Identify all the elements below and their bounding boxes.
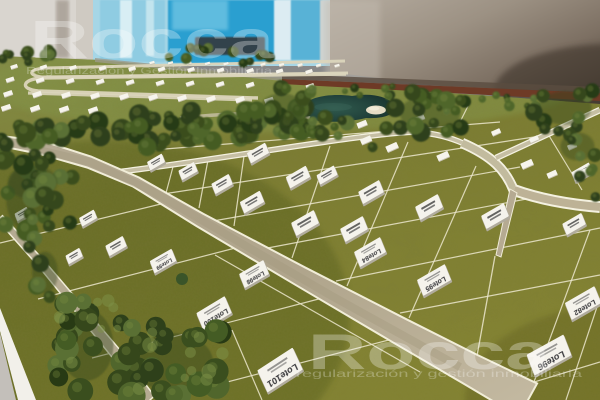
svg-text:Regularización y Gestión Inmob: Regularización y Gestión Inmobiliaria xyxy=(26,65,272,77)
svg-text:Rocca: Rocca xyxy=(30,10,275,70)
svg-text:regularización y gestión inmob: regularización y gestión inmobiliaria xyxy=(296,369,583,380)
